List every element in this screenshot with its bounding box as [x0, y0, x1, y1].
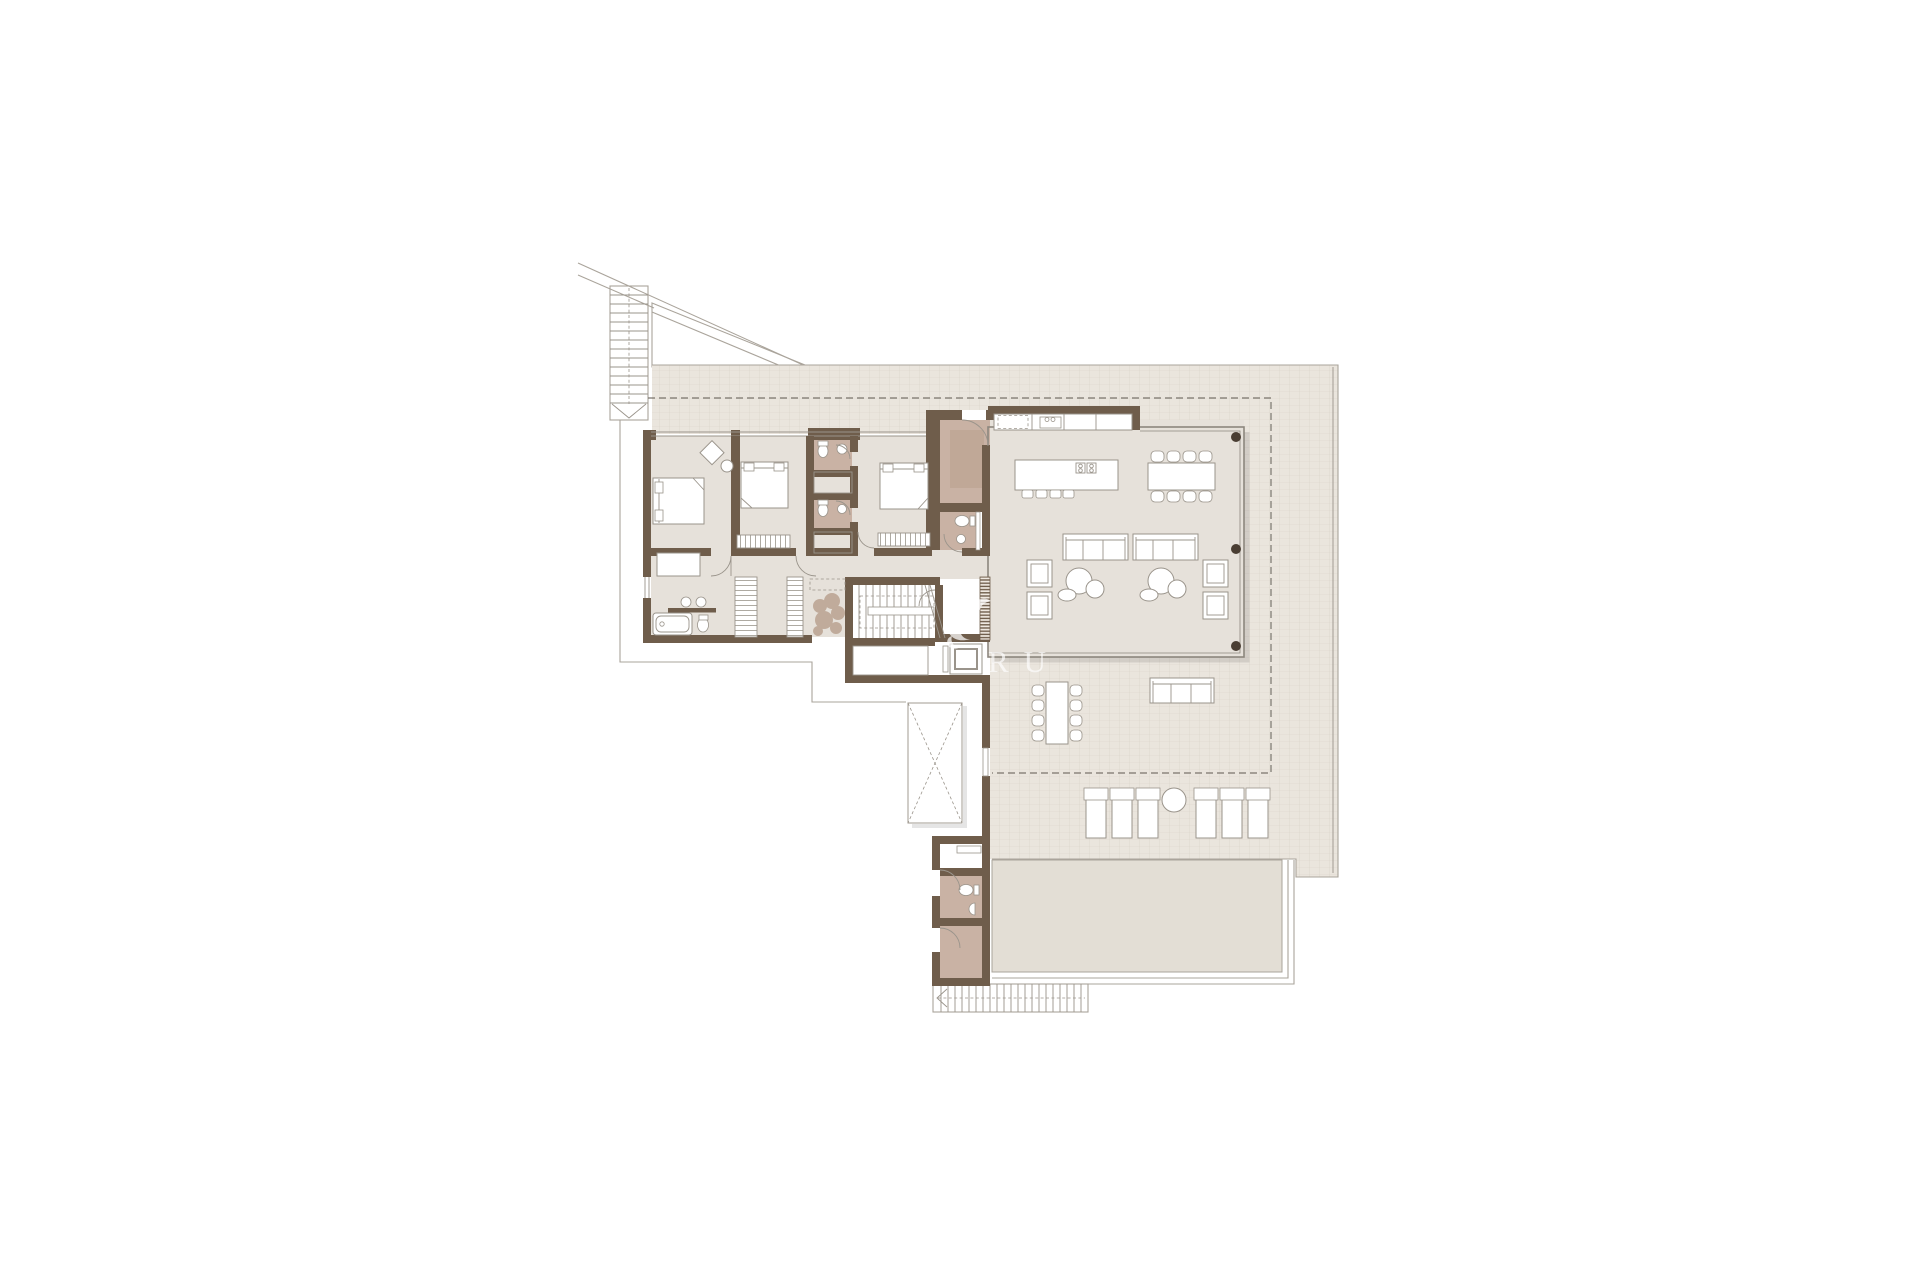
wall-stair-west — [845, 577, 853, 683]
lounger-pillow — [1110, 788, 1134, 800]
void-shadow — [912, 706, 965, 826]
dining-chair — [1183, 491, 1196, 502]
void-opening — [908, 703, 965, 826]
wall-stair-mid — [853, 638, 935, 646]
entry-door-gap — [962, 410, 986, 420]
pillow — [744, 463, 754, 471]
wall-poolwc-west — [932, 896, 940, 928]
external-staircase-lower — [933, 984, 1088, 1012]
stair-direction-arrow — [612, 404, 646, 418]
drain — [660, 622, 664, 626]
wardrobe — [737, 535, 790, 548]
lounger-pillow — [1220, 788, 1244, 800]
wall-poolwc-div2 — [940, 918, 990, 926]
gravel-triangle-inner-line — [652, 312, 788, 369]
chair — [1070, 715, 1082, 726]
balustrade-grille — [980, 577, 990, 640]
coffee-table — [1168, 580, 1186, 598]
guestwc-shower-screen — [976, 512, 980, 550]
pillow — [914, 464, 924, 472]
entry-rug — [950, 430, 984, 488]
wardrobe — [878, 533, 930, 546]
pillow — [883, 464, 893, 472]
pouf — [1058, 589, 1076, 601]
bar-stool — [1022, 490, 1033, 498]
bar-stool — [1036, 490, 1047, 498]
terrace-tiles-step — [1296, 859, 1338, 877]
column-icon — [1231, 544, 1241, 554]
wall-bath-east — [850, 436, 858, 452]
dining-chair — [1167, 491, 1180, 502]
wall-terrace-west-lower — [982, 776, 990, 844]
wall-poolwc-div1 — [940, 868, 990, 876]
wall-vestibule-east — [982, 445, 990, 505]
floor-plan-svg: RU — [0, 0, 1920, 1280]
elevator-door-panel — [943, 646, 948, 672]
outdoor-dining-table — [1046, 682, 1068, 744]
pillow — [655, 482, 663, 493]
floor-plan-image: RU — [0, 0, 1920, 1280]
stair-handrail — [868, 607, 934, 615]
bar-stool — [1050, 490, 1061, 498]
wall-stair-north — [845, 577, 940, 585]
sink-icon — [838, 505, 847, 514]
lounger-pillow — [1194, 788, 1218, 800]
chair — [1070, 730, 1082, 741]
sofa — [1063, 534, 1128, 560]
column-icon — [1231, 432, 1241, 442]
lounger-pillow — [1246, 788, 1270, 800]
chair — [1032, 685, 1044, 696]
chair — [1032, 730, 1044, 741]
wall-poolwc-west — [932, 844, 940, 870]
gravel-triangle — [652, 303, 810, 367]
wall-entry-north — [926, 410, 966, 420]
dining-chair — [1199, 491, 1212, 502]
pouf — [1140, 589, 1158, 601]
toilet-icon — [818, 445, 828, 458]
pool — [992, 860, 1282, 972]
dining-chair — [1151, 491, 1164, 502]
dresser — [657, 553, 700, 576]
dining-chair — [1199, 451, 1212, 462]
dining-chair — [1151, 451, 1164, 462]
window-west — [643, 577, 651, 598]
vanity-counter — [668, 608, 716, 613]
kitchen-sink — [1040, 417, 1061, 428]
wall-guestwc-east — [982, 512, 990, 552]
wall-poolwc-east — [982, 844, 990, 986]
wall-bed1-bed2 — [731, 436, 740, 548]
storage-room — [853, 646, 928, 675]
wall-bed2-south — [731, 548, 796, 556]
wardrobe-column — [735, 577, 757, 637]
dining-table — [1148, 463, 1215, 490]
wall-poolwc-north — [932, 836, 990, 844]
wall-poolwc-south — [932, 978, 990, 986]
stair-block — [845, 577, 990, 683]
bar-stool — [1063, 490, 1074, 498]
wardrobe-column — [787, 577, 803, 637]
lounger-pillow — [1084, 788, 1108, 800]
wall-bed3-south — [874, 548, 932, 556]
wall-terrace-west-upper — [982, 683, 990, 748]
dining-chair — [1183, 451, 1196, 462]
kitchen-counter — [994, 414, 1132, 430]
toilet-icon — [955, 516, 969, 527]
side-table — [721, 460, 733, 472]
sink-icon — [681, 597, 691, 607]
wall-bath-div — [806, 493, 858, 500]
pool-wc-floor — [940, 876, 983, 920]
external-staircase-upper — [610, 286, 648, 420]
dining-chair — [1167, 451, 1180, 462]
kitchen-island — [1015, 460, 1118, 490]
outdoor-sofa — [1150, 678, 1214, 703]
pillow — [774, 463, 784, 471]
wall-kitchen-north — [988, 406, 1140, 414]
chair — [1070, 685, 1082, 696]
chair — [1070, 700, 1082, 711]
coffee-table — [1086, 580, 1104, 598]
toilet-icon — [818, 504, 828, 517]
wall-guestwc-north — [930, 503, 990, 512]
pool-shower-floor — [940, 926, 983, 980]
wall-stair-south — [845, 675, 990, 683]
chair — [1032, 700, 1044, 711]
side-table — [1162, 788, 1186, 812]
lounger-pillow — [1136, 788, 1160, 800]
pool-area — [992, 860, 1294, 984]
void-cross — [908, 703, 962, 823]
sink-icon — [957, 535, 966, 544]
chair — [1032, 715, 1044, 726]
sofa — [1133, 534, 1198, 560]
toilet-icon — [959, 885, 973, 896]
sink-counter — [957, 846, 981, 853]
wall-stub — [643, 430, 656, 440]
sink-icon — [696, 597, 706, 607]
watermark-text: RU — [988, 644, 1061, 679]
sliding-door — [983, 748, 988, 776]
pillow — [655, 510, 663, 521]
wall-kitchen-corner — [1132, 406, 1140, 430]
column-icon — [1231, 641, 1241, 651]
wall-west-upper — [643, 430, 651, 577]
